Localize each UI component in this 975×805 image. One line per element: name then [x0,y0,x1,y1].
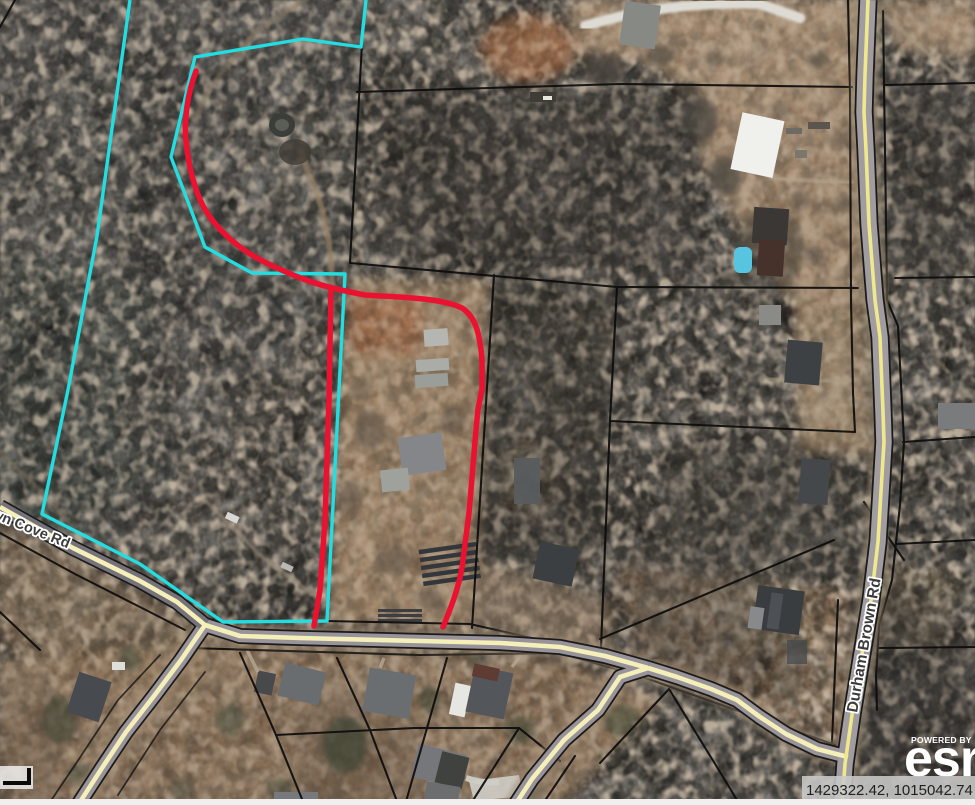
svg-text:1429322.42, 1015042.74: 1429322.42, 1015042.74 [806,782,973,799]
